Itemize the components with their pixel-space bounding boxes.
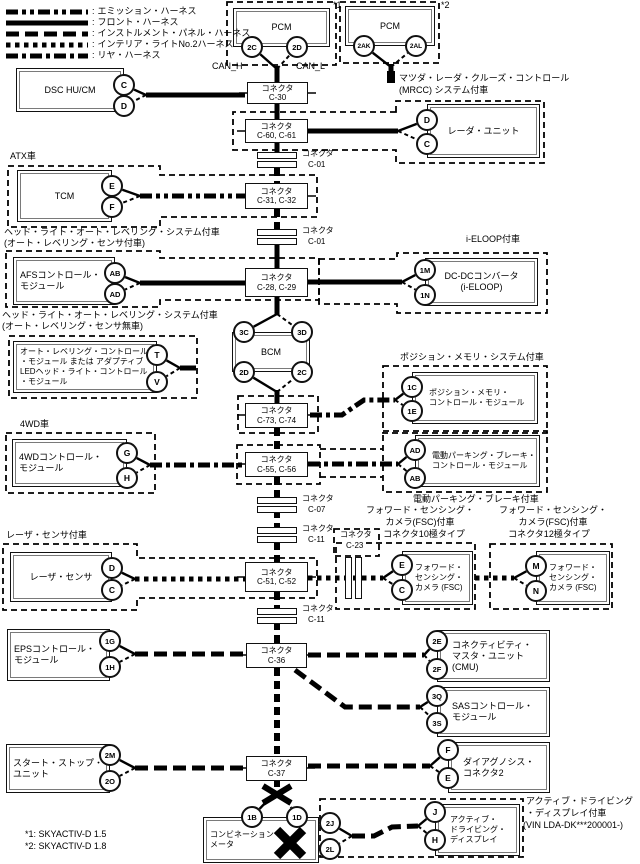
legend-separator: : — [92, 28, 95, 38]
c11a-connector-label-line-1: コネクタ — [302, 524, 334, 533]
dcdc-label-line-1: DC-DCコンバータ — [445, 271, 519, 282]
posmem-label-line-2: コントロール・モジュール — [429, 398, 524, 408]
dsc-label-line-1: DSC HU/CM — [45, 85, 96, 96]
pin-lead-solid-0 — [134, 90, 146, 95]
park-pin-AD: AD — [404, 439, 426, 461]
c23-connector-label-line-2: C-23 — [344, 541, 365, 550]
fsc1-box: フォワード・センシング・カメラ (FSC) — [402, 551, 473, 605]
laser-pin-C: C — [101, 579, 123, 601]
c2829-connector-word: コネクタ — [261, 273, 293, 283]
c5152-connector: コネクタC-51, C-52 — [245, 562, 308, 592]
meter-label-line-2: メータ — [210, 840, 234, 850]
c01a-bar-0 — [257, 152, 297, 159]
pin-lead-solid-7 — [167, 360, 180, 368]
dsc-pin-D: D — [113, 95, 135, 117]
note1-label: *1: SKYACTIV-D 1.5 — [25, 829, 106, 840]
fsc2-label-line-2: センシング・ — [549, 573, 597, 583]
cmu-pin-2F: 2F — [426, 658, 448, 680]
fsc2-box: フォワード・センシング・カメラ (FSC) — [536, 551, 610, 605]
startstop-box: スタート・ストップ・ユニット — [6, 744, 110, 793]
fourwd-label: 4WD車 — [20, 419, 49, 430]
dsc-pin-C: C — [113, 74, 135, 96]
al1-label: ヘッド・ライト・オート・レベリング・システム付車 — [2, 310, 218, 321]
pin-lead-solid-15 — [514, 571, 526, 578]
laser-box: レーザ・センサ — [10, 552, 112, 602]
pin-lead-dashed-5 — [125, 283, 140, 290]
c36-connector-word: コネクタ — [261, 646, 293, 656]
diag-label-line-2: コネクタ2 — [463, 768, 504, 779]
fsc10_2-label: カメラ(FSC)付車 — [386, 517, 455, 528]
atx-label: ATX車 — [10, 151, 36, 162]
posmem-label: ポジション・メモリ・システム付車 — [400, 352, 544, 363]
pin-lead-solid-4 — [122, 190, 140, 196]
meter-pin-1D: 1D — [286, 806, 308, 828]
autolevel-box: オート・レベリング・コントロール・モジュール または アダプティブLEDヘッド・… — [13, 341, 157, 393]
laser-pin-D: D — [101, 557, 123, 579]
c30-connector: コネクタC-30 — [247, 82, 308, 104]
pin-lead-dashed-20 — [430, 766, 439, 772]
eps-pin-1H: 1H — [99, 656, 121, 678]
sas-label-line-1: SASコントロール・ — [452, 701, 533, 712]
afs-pin-AB: AB — [104, 262, 126, 284]
legend-item-interior: :インテリア・ライトNo.2ハーネス — [92, 39, 234, 50]
pin-lead-dashed-9 — [277, 379, 293, 392]
disp2-label: ・ディスプレイ付車 — [526, 808, 606, 819]
c7374-connector-id: C-73, C-74 — [257, 416, 296, 426]
legend-item-label: フロント・ハーネス — [98, 17, 179, 27]
pin-lead-solid-21 — [418, 819, 427, 826]
laser-label: レーザ・センサ付車 — [6, 530, 87, 541]
c7374-connector: コネクタC-73, C-74 — [245, 403, 308, 428]
c37-connector-id: C-37 — [268, 769, 285, 779]
fourwd-label-line-2: モジュール — [19, 463, 63, 474]
c5556-connector-id: C-55, C-56 — [257, 465, 296, 475]
eps-box: EPSコントロール・モジュール — [7, 629, 110, 681]
meter-label-line-1: コンビネーション・ — [210, 830, 282, 840]
legend-item-label: エミッション・ハーネス — [98, 6, 197, 16]
pin-lead-solid-19 — [120, 760, 135, 768]
display-box: アクティブ・ドライビング・ディスプレイ — [435, 804, 520, 856]
fourwd-pin-H: H — [116, 467, 138, 489]
display-pin-J: J — [424, 801, 446, 823]
startstop-label-line-2: ユニット — [13, 769, 49, 780]
pin-lead-dashed-2 — [391, 53, 408, 67]
c6061-connector-id: C-60, C-61 — [257, 131, 296, 141]
c36-connector-id: C-36 — [268, 656, 285, 666]
park-label-line-1: 電動パーキング・ブレーキ・ — [432, 451, 536, 461]
afs-box: AFSコントロール・モジュール — [13, 257, 115, 305]
bcm-pin-3C: 3C — [233, 321, 255, 343]
radar-pin-C: C — [416, 133, 438, 155]
legend-separator: : — [92, 50, 95, 60]
note2-label: *2: SKYACTIV-D 1.8 — [25, 841, 106, 852]
pin-lead-solid-2 — [373, 53, 391, 67]
sas-pin-3Q: 3Q — [426, 685, 448, 707]
autolevel-label-line-3: LEDヘッド・ライト・コントロール — [20, 367, 148, 377]
fourwd-pin-G: G — [116, 442, 138, 464]
c5152-connector-id: C-51, C-52 — [257, 577, 296, 587]
pin-lead-solid-14 — [383, 571, 393, 578]
pin-lead-solid-9 — [253, 378, 277, 392]
cmu-pin-2E: 2E — [426, 630, 448, 652]
autolevel-label-line-4: ・モジュール — [20, 377, 67, 387]
c07-connector-label-line-1: コネクタ — [302, 494, 334, 503]
can_h-label: CAN_H — [212, 61, 243, 72]
fsc1-label-line-1: フォワード・ — [415, 563, 463, 573]
pin-lead-dashed-3 — [398, 131, 417, 140]
pin-lead-dashed-11 — [137, 465, 150, 473]
pin-lead-solid-10 — [395, 394, 403, 400]
fsc1-pin-E: E — [391, 554, 413, 576]
legend-item-front: :フロント・ハーネス — [92, 17, 179, 28]
legend-separator: : — [92, 17, 95, 27]
c37-connector-word: コネクタ — [261, 759, 293, 769]
posmem-label-line-1: ポジション・メモリ・ — [429, 388, 509, 398]
legend-item-label: リヤ・ハーネス — [98, 50, 161, 60]
afs-label-line-2: モジュール — [20, 281, 64, 292]
pin-lead-solid-3 — [398, 124, 417, 131]
startstop-pin-2O: 2O — [99, 770, 121, 792]
pin-lead-dashed-21 — [418, 826, 427, 833]
autolevel-label-line-2: ・モジュール または アダプティブ — [20, 357, 143, 367]
posmem-pin-1E: 1E — [401, 400, 423, 422]
posmem-box: ポジション・メモリ・コントロール・モジュール — [412, 372, 538, 424]
sup1-label: *1 — [333, 0, 342, 11]
c23-bar-1 — [355, 557, 362, 599]
instrument-harness-wire-31 — [295, 670, 420, 707]
legend-item-label: インストルメント・パネル・ハーネス — [98, 28, 251, 38]
pcm1-label-line-1: PCM — [272, 22, 292, 33]
diag-pin-F: F — [437, 739, 459, 761]
fsc10_3-label: コネクタ10極タイプ — [383, 529, 465, 540]
c11b-bar-1 — [257, 617, 297, 624]
bcm-pin-2D: 2D — [233, 361, 255, 383]
dcdc-label-line-2: (i-ELOOP) — [460, 282, 502, 293]
fourwd-label-line-1: 4WDコントロール・ — [19, 452, 102, 463]
disp3-label: (VIN LDA-DK***200001-) — [523, 820, 623, 831]
c2829-connector: コネクタC-28, C-29 — [245, 268, 308, 297]
bcm-pin-2C: 2C — [291, 361, 313, 383]
bcm-label-line-1: BCM — [261, 347, 281, 358]
pin-lead-dashed-4 — [122, 196, 140, 203]
pin-lead-dashed-12 — [398, 464, 407, 471]
al2-label: (オート・レベリング・センサ無車) — [2, 321, 143, 332]
dcdc-box: DC-DCコンバータ(i-ELOOP) — [425, 258, 538, 306]
instrument-harness-wire-34 — [352, 826, 418, 836]
c5556-connector-word: コネクタ — [261, 455, 293, 465]
c01a-bar-1 — [257, 161, 297, 168]
pcm2-label-line-1: PCM — [380, 21, 400, 32]
autolevel-pin-V: V — [146, 371, 168, 393]
sup2-label: *2 — [441, 0, 450, 11]
c11b-connector-label-line-1: コネクタ — [302, 604, 334, 613]
fsc12_2-label: カメラ(FSC)付車 — [519, 517, 588, 528]
afs1-label: ヘッド・ライト・オート・レベリング・システム付車 — [4, 227, 220, 238]
autolevel-pin-T: T — [146, 344, 168, 366]
afs2-label: (オート・レベリング・センサ付車) — [4, 238, 145, 249]
mrcc2-label: (MRCC) システム付車 — [399, 85, 488, 96]
bcm-pin-3D: 3D — [291, 321, 313, 343]
c36-connector: コネクタC-36 — [246, 643, 307, 668]
radar-label-line-1: レーダ・ユニット — [447, 126, 519, 137]
autolevel-label-line-1: オート・レベリング・コントロール — [20, 347, 148, 357]
pin-lead-dashed-19 — [120, 768, 135, 776]
cmu-label-line-1: コネクティビティ・ — [452, 640, 532, 651]
sas-box: SASコントロール・モジュール — [437, 687, 550, 737]
c3132-connector-id: C-31, C-32 — [257, 196, 296, 206]
legend-item-instrument: :インストルメント・パネル・ハーネス — [92, 28, 250, 39]
park-label-line-2: コントロール・モジュール — [432, 461, 527, 471]
c01b-connector-label-line-2: C-01 — [308, 237, 325, 246]
pcm2-pin-2AK: 2AK — [353, 35, 375, 57]
c6061-connector: コネクタC-60, C-61 — [245, 119, 308, 143]
fsc12_3-label: コネクタ12極タイプ — [508, 529, 590, 540]
c01b-bar-1 — [257, 238, 297, 245]
dcdc-pin-1M: 1M — [414, 259, 436, 281]
pin-lead-solid-11 — [137, 458, 150, 465]
c11b-connector-label-line-2: C-11 — [308, 615, 325, 624]
pin-lead-solid-8 — [254, 314, 277, 327]
fsc2-label-line-1: フォワード・ — [549, 563, 597, 573]
pin-lead-dashed-13 — [122, 579, 135, 585]
legend-item-label: インテリア・ライトNo.2ハーネス — [98, 39, 234, 49]
c7374-connector-word: コネクタ — [261, 406, 293, 416]
pin-lead-solid-6 — [402, 275, 415, 282]
pin-lead-dashed-0 — [134, 95, 146, 101]
c01a-connector-label-line-2: C-01 — [308, 160, 325, 169]
c01b-bar-0 — [257, 229, 297, 236]
pin-lead-dashed-14 — [383, 578, 393, 584]
meter-pin-2J: 2J — [319, 812, 341, 834]
c23-connector-label-line-1: コネクタ — [338, 530, 374, 539]
fsc1-label-line-3: カメラ (FSC) — [415, 583, 463, 593]
c5152-connector-word: コネクタ — [261, 568, 293, 578]
sas-label-line-2: モジュール — [452, 712, 496, 723]
tcm-pin-E: E — [101, 175, 123, 197]
pin-lead-solid-12 — [398, 457, 407, 464]
dcdc-pin-1N: 1N — [414, 284, 436, 306]
diag-pin-E: E — [437, 767, 459, 789]
diag-label-line-1: ダイアグノシス・ — [463, 757, 534, 768]
pin-lead-dashed-1 — [277, 55, 290, 69]
mrcc1-label: マツダ・レーダ・クルーズ・コントロール — [399, 73, 569, 84]
ieloop-label: i-ELOOP付車 — [466, 234, 520, 245]
park-box: 電動パーキング・ブレーキ・コントロール・モジュール — [415, 435, 540, 487]
c11a-bar-1 — [257, 536, 297, 543]
c07-connector-label-line-2: C-07 — [308, 505, 325, 514]
c5556-connector: コネクタC-55, C-56 — [245, 452, 308, 477]
afs-label-line-1: AFSコントロール・ — [20, 270, 101, 281]
pin-lead-solid-17 — [424, 649, 430, 655]
legend-separator: : — [92, 39, 95, 49]
startstop-pin-2M: 2M — [99, 744, 121, 766]
posmem-pin-1C: 1C — [401, 376, 423, 398]
cmu-label-line-3: (CMU) — [452, 662, 479, 673]
c07-bar-1 — [257, 506, 297, 513]
radar-box: レーダ・ユニット — [427, 104, 540, 158]
pin-lead-solid-18 — [420, 702, 428, 707]
c11a-bar-0 — [257, 527, 297, 534]
tcm-pin-F: F — [101, 196, 123, 218]
park-label: 電動パーキング・ブレーキ付車 — [413, 494, 539, 505]
c3132-connector: コネクタC-31, C-32 — [245, 183, 308, 209]
pin-lead-dashed-8 — [277, 314, 293, 326]
disp1-label: アクティブ・ドライビング — [526, 796, 633, 807]
pcm2-pin-2AL: 2AL — [405, 35, 427, 57]
c23-bar-0 — [345, 557, 352, 599]
meter-pin-2L: 2L — [319, 838, 341, 860]
pin-lead-solid-16 — [120, 646, 135, 654]
c11a-connector-label-line-2: C-11 — [308, 535, 325, 544]
pin-lead-solid-5 — [125, 277, 140, 283]
fsc1-pin-C: C — [391, 579, 413, 601]
tcm-label-line-1: TCM — [55, 191, 75, 202]
c3132-connector-word: コネクタ — [261, 187, 293, 197]
c01a-connector-label-line-1: コネクタ — [302, 149, 334, 158]
mrcc-stub-terminator — [387, 71, 395, 83]
pin-lead-solid-13 — [122, 573, 135, 579]
park-pin-AB: AB — [404, 467, 426, 489]
eps-pin-1G: 1G — [99, 630, 121, 652]
legend-separator: : — [92, 6, 95, 16]
cmu-box: コネクティビティ・マスタ・ユニット(CMU) — [437, 630, 550, 682]
fsc12_1-label: フォワード・センシング・ — [499, 505, 607, 516]
display-label-line-3: ディスプレイ — [450, 835, 497, 845]
legend-item-rear: :リヤ・ハーネス — [92, 50, 161, 61]
afs-pin-AD: AD — [104, 283, 126, 305]
dsc-box: DSC HU/CM — [16, 68, 124, 112]
c01b-connector-label-line-1: コネクタ — [302, 226, 334, 235]
pin-lead-solid-24 — [339, 829, 352, 836]
fsc1-label-line-2: センシング・ — [415, 573, 463, 583]
fourwd-box: 4WDコントロール・モジュール — [12, 439, 127, 487]
can-wiring-diagram: PCM2C2DPCM2AK2ALDSC HU/CMCDレーダ・ユニットDCTCM… — [0, 0, 640, 864]
diag-box: ダイアグノシス・コネクタ2 — [448, 742, 550, 793]
pcm1-pin-2C: 2C — [241, 36, 263, 58]
c30-connector-word: コネクタ — [262, 84, 294, 94]
pin-lead-dashed-6 — [402, 282, 415, 290]
c11b-bar-0 — [257, 608, 297, 615]
tcm-box: TCM — [17, 170, 112, 222]
pin-lead-dashed-24 — [339, 836, 352, 843]
c37-connector: コネクタC-37 — [246, 756, 307, 781]
sas-pin-3S: 3S — [426, 712, 448, 734]
laser-label-line-1: レーザ・センサ — [30, 572, 93, 583]
meter-pin-1B: 1B — [241, 806, 263, 828]
pin-lead-dashed-18 — [420, 707, 429, 715]
pcm1-pin-2D: 2D — [286, 36, 308, 58]
pin-lead-solid-20 — [430, 757, 440, 766]
fsc2-pin-N: N — [525, 580, 547, 602]
legend-item-emission: :エミッション・ハーネス — [92, 6, 197, 17]
c6061-connector-word: コネクタ — [261, 122, 293, 132]
display-label-line-1: アクティブ・ — [450, 815, 497, 825]
pin-lead-dashed-10 — [395, 400, 403, 405]
can_l-label: CAN_L — [296, 61, 325, 72]
c07-bar-0 — [257, 497, 297, 504]
fsc10_1-label: フォワード・センシング・ — [366, 505, 474, 516]
c2829-connector-id: C-28, C-29 — [257, 283, 296, 293]
startstop-label-line-1: スタート・ストップ・ — [13, 758, 103, 769]
radar-pin-D: D — [416, 109, 438, 131]
c30-connector-id: C-30 — [269, 93, 286, 103]
eps-label-line-1: EPSコントロール・ — [14, 644, 95, 655]
cmu-label-line-2: マスタ・ユニット — [452, 651, 524, 662]
pin-lead-dashed-7 — [166, 368, 180, 376]
display-label-line-2: ドライビング・ — [450, 825, 506, 835]
fsc2-pin-M: M — [525, 555, 547, 577]
pin-lead-dashed-15 — [514, 578, 527, 585]
display-pin-H: H — [424, 829, 446, 851]
pin-lead-solid-1 — [260, 54, 277, 69]
eps-label-line-2: モジュール — [14, 655, 58, 666]
fsc2-label-line-3: カメラ (FSC) — [549, 583, 597, 593]
pin-lead-dashed-16 — [120, 654, 135, 662]
